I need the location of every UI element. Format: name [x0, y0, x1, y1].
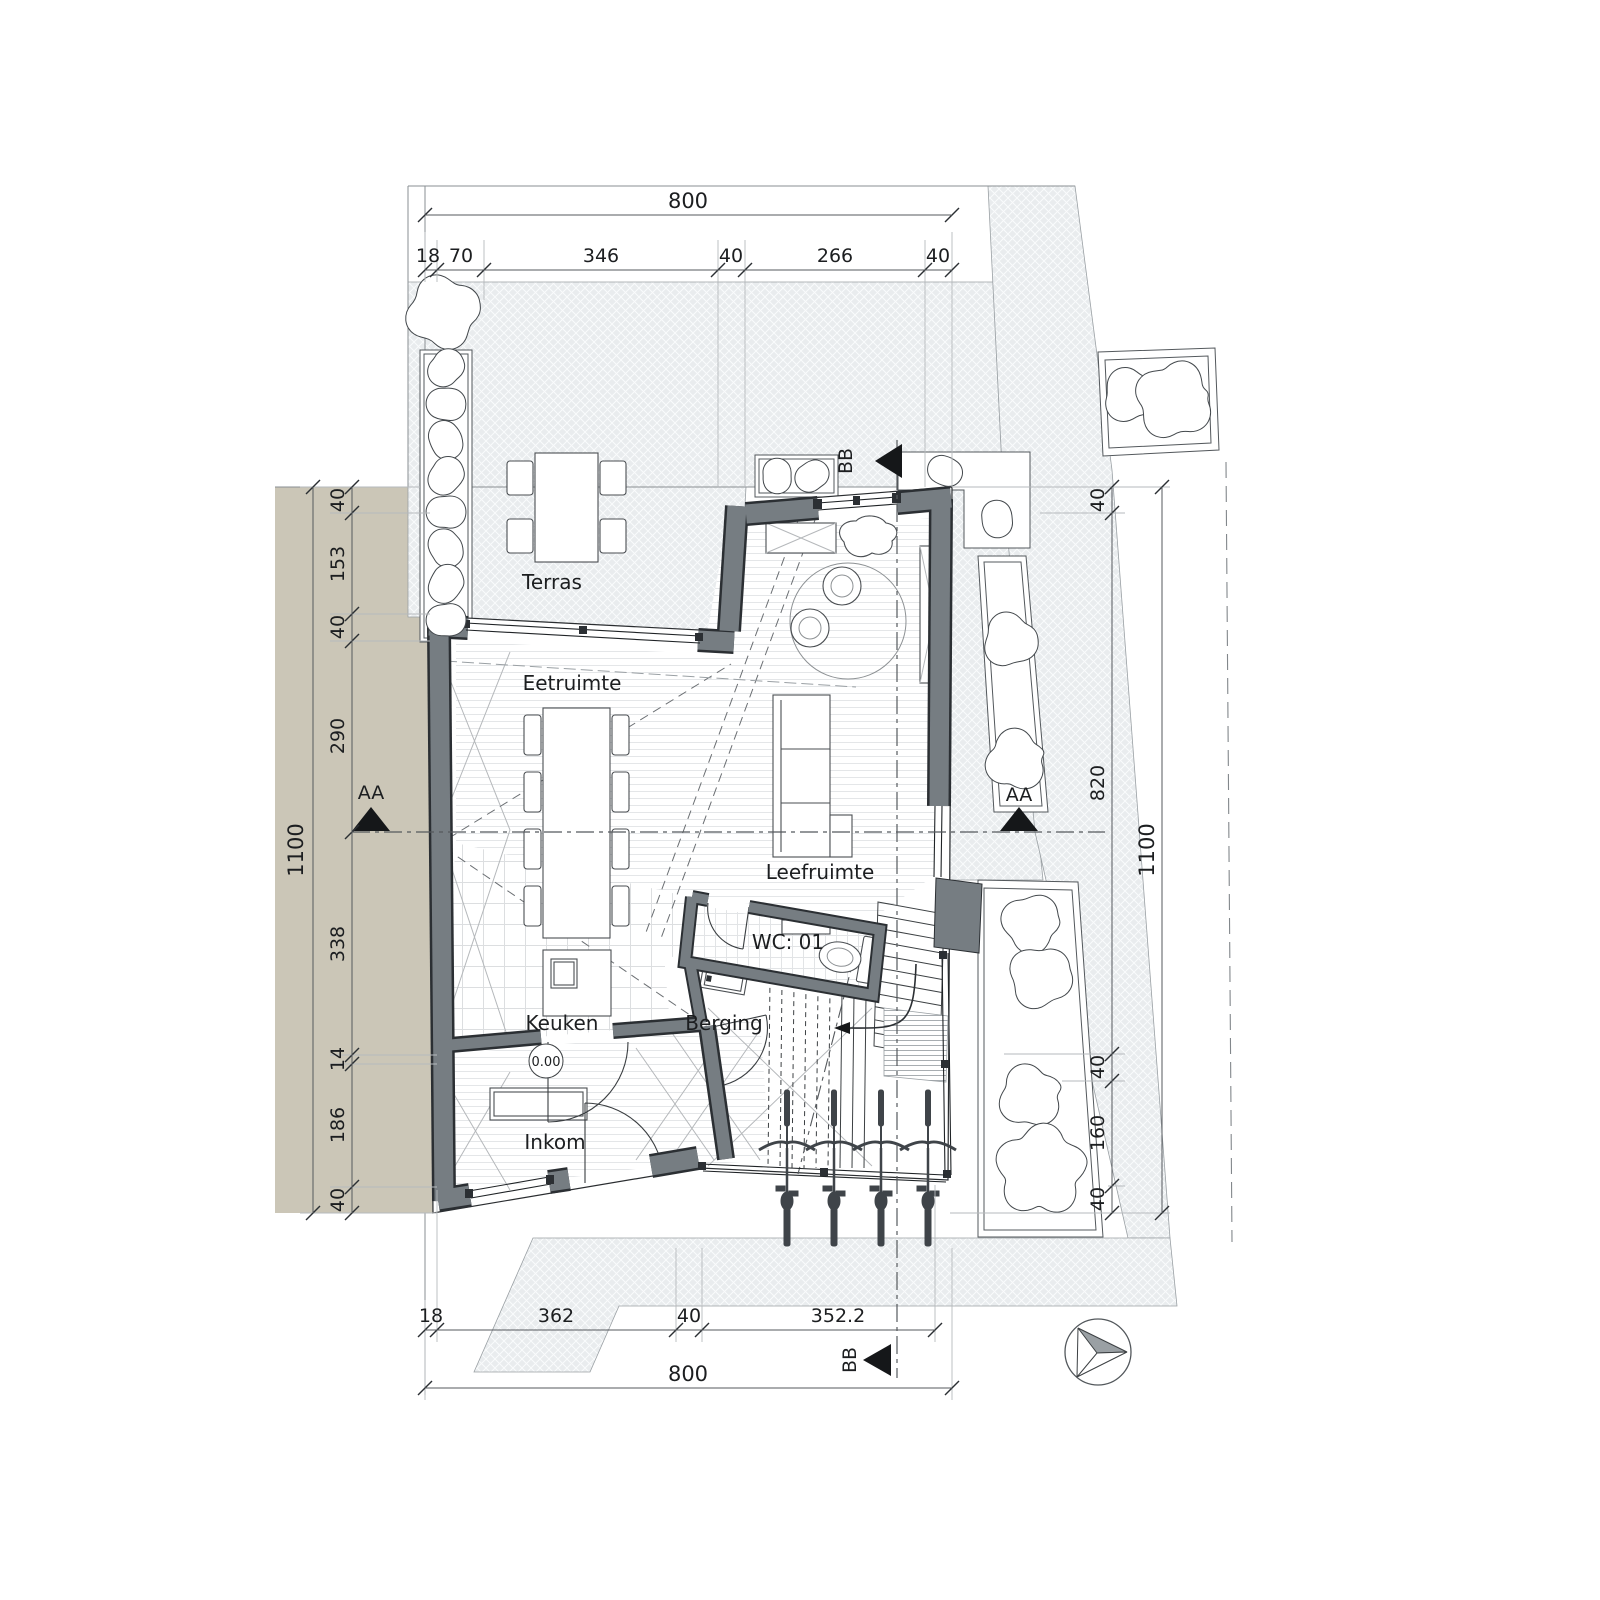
dim-label: 362	[538, 1305, 574, 1327]
dim-label: 153	[327, 546, 349, 582]
dining-chair	[612, 715, 629, 755]
north-arrow-icon	[1065, 1319, 1131, 1385]
shrub-icon	[426, 388, 466, 420]
level-value: 0.00	[532, 1055, 561, 1070]
dining-chair	[524, 715, 541, 755]
dim-label: 40	[677, 1305, 701, 1327]
dim-label: 40	[1087, 1055, 1109, 1079]
room-label-terras: Terras	[521, 570, 582, 594]
kitchen-sink-basin	[554, 962, 574, 985]
dim-label: 266	[817, 245, 853, 267]
room-label-keuken: Keuken	[526, 1011, 599, 1035]
sofa-chaise	[830, 815, 852, 857]
dim-label: 346	[583, 245, 619, 267]
terras-table	[535, 453, 598, 562]
shrub-icon	[426, 496, 466, 528]
dim-label: 70	[449, 245, 473, 267]
understair-hatch	[884, 1008, 948, 1082]
dining-chair	[612, 886, 629, 926]
tub-chair	[823, 567, 861, 605]
room-label-eetruimte: Eetruimte	[523, 671, 622, 695]
dim-label: 1100	[1135, 823, 1159, 876]
dim-label: 800	[668, 1362, 708, 1386]
floor-plan-page: 0.00 AA AA BB BB Terras Eetruimte Leefru…	[0, 0, 1600, 1600]
dim-label: 40	[327, 488, 349, 512]
floor-plan: 0.00 AA AA BB BB Terras Eetruimte Leefru…	[0, 0, 1600, 1600]
dim-label: 338	[327, 926, 349, 962]
dim-label: 40	[719, 245, 743, 267]
dim-label: 40	[1087, 1187, 1109, 1211]
dim-label: 820	[1087, 765, 1109, 801]
terras-chair	[507, 519, 533, 553]
section-label: BB	[839, 1347, 861, 1373]
shrub-icon	[982, 500, 1013, 538]
dim-label: 18	[419, 1305, 443, 1327]
terras-chair	[600, 461, 626, 495]
dining-chair	[524, 886, 541, 926]
dim-label: 40	[327, 615, 349, 639]
dining-chair	[612, 829, 629, 869]
terras-chair	[507, 461, 533, 495]
dim-label: 290	[327, 718, 349, 754]
dim-label: 14	[327, 1047, 349, 1071]
room-label-wc: WC: 01	[752, 930, 824, 954]
wall-pier	[934, 878, 982, 953]
dining-chair	[524, 829, 541, 869]
dim-label: 40	[1087, 488, 1109, 512]
dining-chair	[524, 772, 541, 812]
room-label-inkom: Inkom	[524, 1130, 585, 1154]
terras-chair	[600, 519, 626, 553]
dim-label: 40	[327, 1188, 349, 1212]
section-label: BB	[835, 448, 857, 474]
dim-label: 800	[668, 189, 708, 213]
dining-table	[543, 708, 610, 938]
room-label-berging: Berging	[685, 1011, 763, 1035]
dim-label: 1100	[284, 823, 308, 876]
room-label-leefruimte: Leefruimte	[766, 860, 875, 884]
shrub-icon	[426, 604, 466, 636]
dim-label: 186	[327, 1107, 349, 1143]
level-marker: 0.00	[529, 1044, 563, 1078]
dining-chair	[612, 772, 629, 812]
tub-chair	[791, 609, 829, 647]
dim-label: 352.2	[811, 1305, 865, 1327]
section-label: AA	[358, 782, 385, 804]
dim-label: 18	[416, 245, 440, 267]
section-label: AA	[1006, 784, 1033, 806]
shrub-icon	[763, 458, 791, 494]
dim-label: 160	[1087, 1115, 1109, 1151]
dim-label: 40	[926, 245, 950, 267]
